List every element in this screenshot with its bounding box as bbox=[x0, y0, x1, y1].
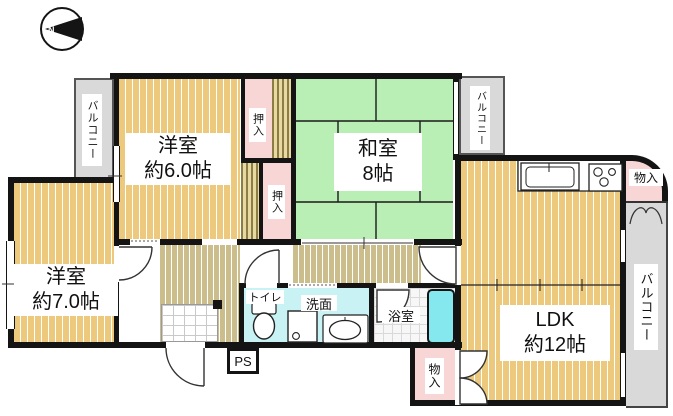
window-ldk-2 bbox=[620, 353, 626, 397]
room-western1-name: 洋室 bbox=[158, 134, 198, 159]
door-toilet bbox=[245, 250, 279, 284]
compass-icon: N bbox=[41, 8, 83, 50]
closet2-label: 押入 bbox=[268, 185, 285, 219]
toilet-label: トイレ bbox=[246, 290, 284, 304]
room-ldk-name: LDK bbox=[536, 308, 575, 333]
wall-japanese-left bbox=[291, 73, 296, 245]
corridor-floor bbox=[293, 245, 421, 283]
wall-ldk-bottom bbox=[410, 400, 626, 406]
room-western2-floor bbox=[14, 183, 114, 342]
balcony-top-label: バルコニー bbox=[470, 86, 490, 150]
wall-closet-mid bbox=[241, 158, 295, 163]
window-ldk-1 bbox=[620, 230, 626, 262]
door-western2 bbox=[119, 247, 152, 280]
window-western1 bbox=[113, 146, 120, 202]
washroom-label: 洗面 bbox=[301, 295, 337, 311]
opening-washroom bbox=[288, 283, 337, 288]
room-ldk-floor bbox=[461, 161, 620, 400]
storage-bottom-label: 物入 bbox=[425, 358, 444, 394]
window-japanese bbox=[453, 82, 459, 154]
balcony-left-label: バルコニー bbox=[82, 94, 102, 166]
door-opening-ldk bbox=[455, 246, 461, 285]
room-label-western1: 洋室 約6.0帖 bbox=[126, 133, 230, 185]
wall-ldk-top bbox=[455, 155, 628, 161]
wall-western2-top bbox=[8, 177, 118, 183]
wall-bath-left bbox=[369, 287, 374, 347]
room-label-western2: 洋室 約7.0帖 bbox=[14, 264, 118, 316]
door-opening-bath bbox=[376, 283, 408, 288]
sliding-door-japanese bbox=[301, 239, 414, 245]
entrance-tile bbox=[161, 304, 218, 342]
room-western2-name: 洋室 bbox=[46, 265, 86, 290]
wall-closet2-left bbox=[259, 163, 263, 240]
room-japanese-size: 8帖 bbox=[362, 162, 393, 187]
pipe-space-box: PS bbox=[227, 348, 259, 374]
wall-hatch-1 bbox=[272, 79, 291, 158]
floor-plan: N bbox=[0, 0, 673, 416]
door-ldk bbox=[419, 247, 456, 284]
balcony-right-label: バルコニー bbox=[634, 264, 658, 350]
storage-topright-label: 物入 bbox=[629, 169, 663, 186]
wall-storage-bottom-left bbox=[410, 342, 415, 406]
door-opening-western1-a bbox=[130, 239, 160, 245]
door-opening-western1-b bbox=[202, 239, 237, 245]
room-label-ldk: LDK 約12帖 bbox=[500, 305, 610, 361]
room-western1-size: 約6.0帖 bbox=[144, 159, 212, 184]
door-opening-storage-bottom bbox=[455, 350, 461, 405]
room-label-japanese: 和室 8帖 bbox=[334, 133, 422, 191]
closet1-label: 押入 bbox=[249, 108, 266, 142]
wall-toilet-left bbox=[239, 283, 244, 348]
room-western2-size: 約7.0帖 bbox=[32, 290, 100, 315]
wall-hatch-2 bbox=[241, 163, 259, 240]
wall-closet1-left bbox=[241, 79, 245, 158]
door-entrance bbox=[166, 348, 204, 386]
bathroom-label: 浴室 bbox=[382, 307, 420, 323]
room-ldk-size: 約12帖 bbox=[524, 333, 586, 358]
room-japanese-name: 和室 bbox=[358, 137, 398, 162]
wall-top bbox=[110, 73, 462, 79]
door-opening-entrance bbox=[166, 342, 205, 348]
pipe-space-label: PS bbox=[234, 354, 251, 369]
door-opening-toilet bbox=[246, 283, 277, 288]
compass-north-label: N bbox=[48, 25, 55, 35]
